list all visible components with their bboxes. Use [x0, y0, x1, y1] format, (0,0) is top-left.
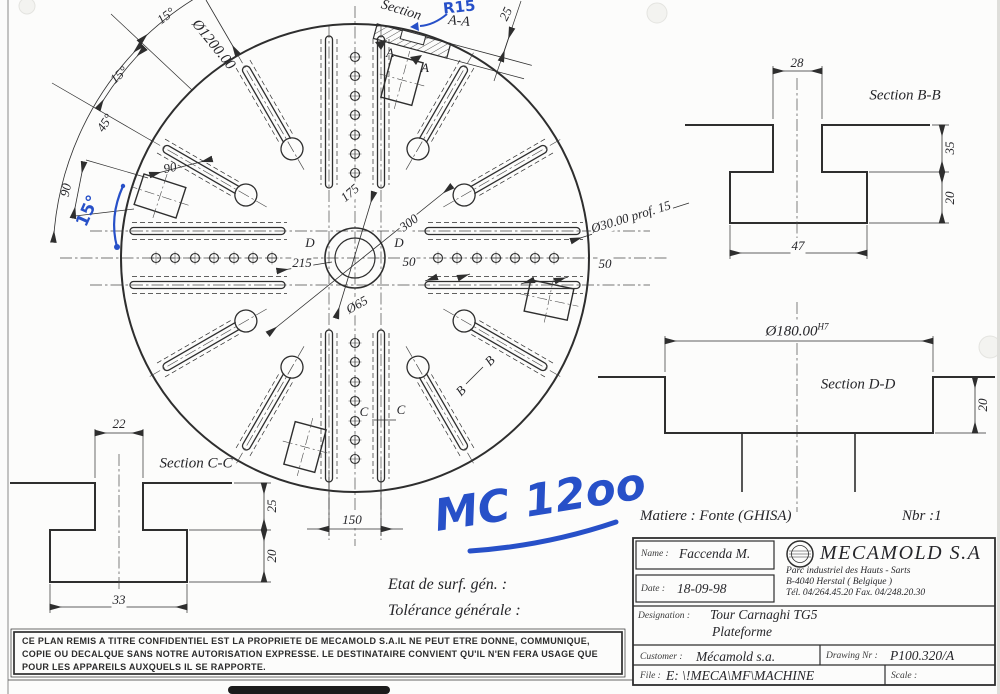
- titleblock-date-label: Date :: [641, 584, 665, 594]
- section-dd-dim-180: Ø180.00H7: [764, 322, 829, 341]
- scan-artifact-bar: [228, 686, 390, 694]
- dim-50-inner: 50: [402, 254, 417, 270]
- titleblock-address-line3: Tél. 04/264.45.20 Fax. 04/248.20.30: [786, 588, 925, 598]
- section-cc-dim-22: 22: [113, 416, 126, 432]
- titleblock-scale-label: Scale :: [891, 671, 917, 681]
- note-surface-finish: Etat de surf. gén. :: [388, 576, 507, 594]
- confidentiality-line-1: CE PLAN REMIS A TITRE CONFIDENTIEL EST L…: [22, 636, 590, 646]
- cut-label-a2: A: [421, 60, 429, 76]
- cut-label-a1: A: [386, 45, 394, 61]
- cut-label-d2: D: [394, 235, 403, 251]
- titleblock-customer-label: Customer :: [640, 652, 683, 662]
- section-cc-title: Section C-C: [160, 456, 233, 473]
- drawing-sheet: Ø1200.00 15° 15° 45° 90 90 175 300 215 5…: [0, 0, 1000, 694]
- titleblock-address-line1: Parc industriel des Hauts - Sarts: [786, 566, 910, 576]
- dim-180-tolerance: H7: [818, 322, 829, 332]
- confidentiality-line-2: COPIE OU DECALQUE SANS NOTRE AUTORISATIO…: [22, 649, 598, 659]
- section-dd-dim-20: 20: [975, 399, 991, 412]
- section-dd-title: Section D-D: [821, 377, 896, 394]
- section-cc-dim-20: 20: [264, 550, 280, 563]
- dim-180-value: Ø180.00: [765, 324, 817, 340]
- section-bb-dim-35: 35: [942, 142, 958, 155]
- section-cc-dim-33: 33: [112, 592, 127, 608]
- section-bb-title: Section B-B: [869, 88, 940, 105]
- section-bb-dim-47: 47: [791, 238, 806, 254]
- titleblock-file-label: File :: [640, 671, 661, 681]
- dim-50-outer: 50: [598, 256, 613, 272]
- titleblock-date-value: 18-09-98: [677, 581, 727, 597]
- confidentiality-line-3: POUR LES APPAREILS AUXQUELS IL SE RAPPOR…: [22, 662, 266, 672]
- note-quantity: Nbr :1: [902, 508, 942, 525]
- titleblock-customer-value: Mécamold s.a.: [696, 649, 775, 665]
- dim-150: 150: [341, 512, 363, 528]
- titleblock-address-line2: B-4040 Herstal ( Belgique ): [786, 577, 892, 587]
- section-bb-dim-28: 28: [791, 55, 804, 71]
- cut-label-c1: C: [360, 404, 369, 420]
- section-bb-dim-20: 20: [942, 192, 958, 205]
- section-dd-view: [598, 336, 995, 492]
- dim-215: 215: [291, 255, 313, 271]
- titleblock-name-label: Name :: [641, 549, 669, 559]
- titleblock-drawingnr-label: Drawing Nr :: [826, 651, 878, 661]
- main-dimensions: [52, 0, 689, 536]
- sheet-frame: [8, 0, 633, 694]
- titleblock-name-value: Faccenda M.: [679, 546, 750, 562]
- titleblock-designation-label: Designation :: [638, 611, 690, 621]
- titleblock-company-name: MECAMOLD S.A: [820, 542, 981, 565]
- note-material: Matiere : Fonte (GHISA): [640, 508, 791, 525]
- titleblock-file-value: E: \!MECA\MF\MACHINE: [666, 668, 814, 684]
- cut-label-d1: D: [305, 235, 314, 251]
- titleblock-designation-value2: Plateforme: [712, 624, 772, 640]
- titleblock-designation-value1: Tour Carnaghi TG5: [710, 607, 818, 623]
- note-general-tolerance: Tolérance générale :: [388, 602, 521, 620]
- titleblock-drawingnr-value: P100.320/A: [890, 648, 954, 664]
- section-cc-dim-25: 25: [264, 500, 280, 513]
- punch-holes: [19, 0, 1000, 358]
- cut-label-c2: C: [397, 402, 406, 418]
